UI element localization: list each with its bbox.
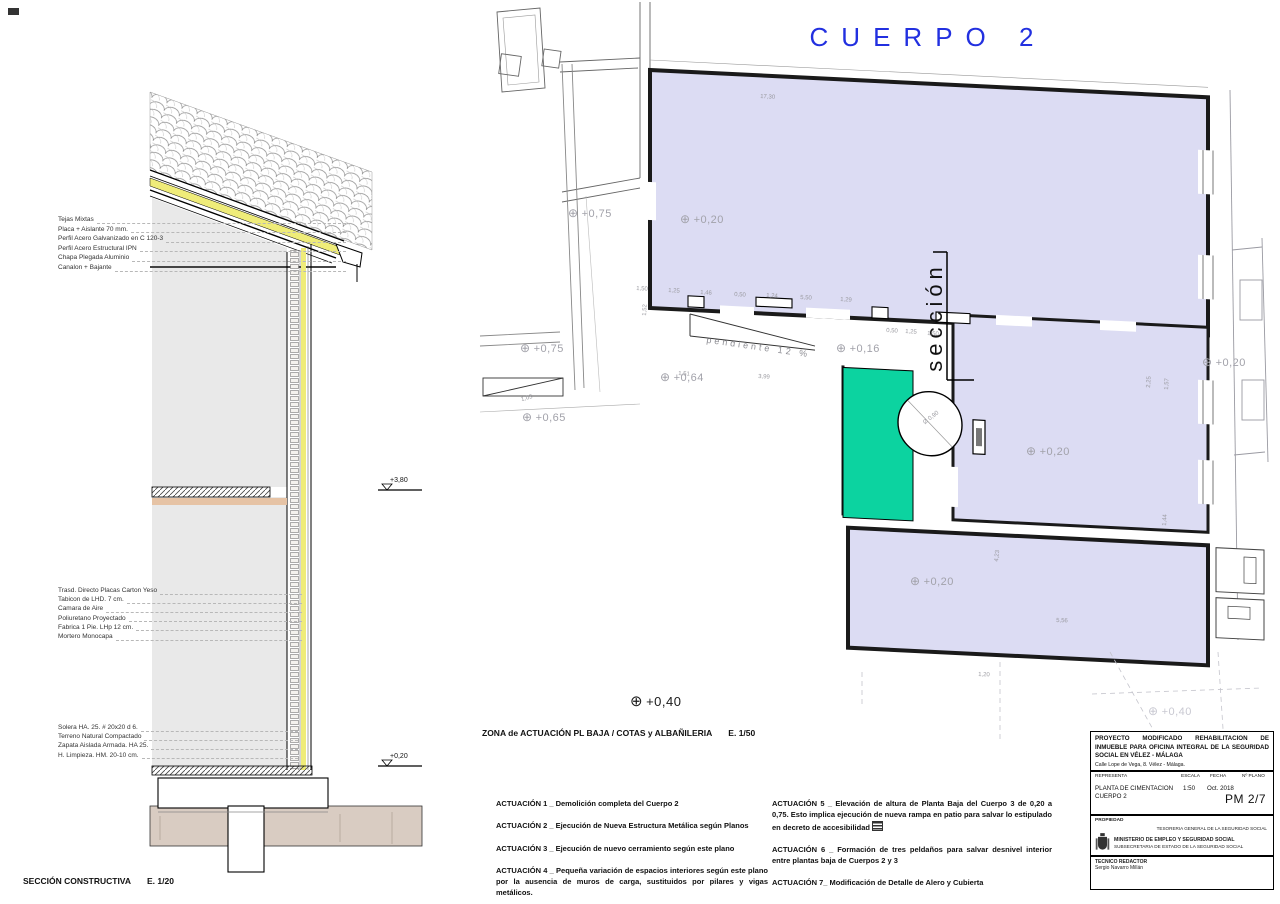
dimension-text-9: 0,50 (886, 328, 898, 335)
plan-title: CUERPO 2 (788, 22, 1068, 53)
leader-line (131, 228, 346, 233)
leader-line (115, 267, 346, 272)
material-label: Zapata Aislada Armada. HA 25. (58, 743, 151, 750)
spot-elevation-7: ⊕+0,20 (1026, 444, 1070, 458)
leader-line (127, 599, 302, 604)
dimension-text-7: 5,50 (800, 295, 812, 302)
dimension-text-13: 3,99 (758, 374, 770, 381)
notes-column-left: ACTUACIÓN 1 _ Demolición completa del Cu… (496, 798, 768, 904)
scale-value: 1:50 (1183, 785, 1195, 792)
representa-value: PLANTA DE CIMENTACION CUERPO 2 (1095, 785, 1173, 802)
leader-line (97, 219, 346, 224)
material-label: Chapa Plegada Aluminio (58, 255, 132, 262)
leader-line (142, 754, 298, 759)
target-icon: ⊕ (568, 206, 579, 220)
spot-elevation-9: ⊕+0,20 (910, 574, 954, 588)
roof-label-4: Perfil Acero Estructural IPN (58, 246, 346, 253)
notes-column-right: ACTUACIÓN 5 _ Elevación de altura de Pla… (772, 798, 1052, 900)
ministerio-text: MINISTERIO DE EMPLEO Y SEGURIDAD SOCIAL (1114, 837, 1243, 843)
target-icon: ⊕ (1026, 444, 1037, 458)
project-address: Calle Lope de Vega, 8. Vélez - Málaga. (1095, 762, 1269, 768)
spot-elevation-main: ⊕+0,40 (630, 692, 681, 710)
material-label: Trasd. Directo Placas Carton Yeso (58, 588, 160, 595)
dimension-text-17: 1,57 (1164, 378, 1171, 390)
dimension-text-8: 1,29 (840, 297, 852, 304)
foundation-label-4: H. Limpieza. HM. 20-10 cm. (58, 753, 298, 760)
material-label: Canalon + Bajante (58, 265, 115, 272)
roof-label-6: Canalon + Bajante (58, 265, 346, 272)
titleblock-values: PLANTA DE CIMENTACION CUERPO 2 1:50 Oct.… (1091, 783, 1273, 813)
dimension-text-18: 1,44 (1162, 514, 1169, 526)
dimension-text-1: 17,30 (760, 94, 775, 101)
subsecretaria-text: SUBSECRETARIA DE ESTADO DE LA SEGURIDAD … (1114, 844, 1243, 849)
dimension-text-20: 5,56 (1056, 618, 1068, 624)
footing (158, 778, 328, 808)
dimension-text-14: 1,52 (642, 304, 649, 316)
material-label: Solera HA. 25. # 20x20 d 6. (58, 725, 141, 732)
dimension-text-11: 1,50 (927, 331, 939, 338)
actuacion-note: ACTUACIÓN 2 _ Ejecución de Nueva Estruct… (496, 820, 768, 831)
dimension-text-3: 1,25 (668, 288, 680, 295)
target-icon: ⊕ (910, 574, 921, 588)
project-title: PROYECTO MODIFICADO REHABILITACION DE IN… (1095, 735, 1269, 761)
spot-elevation-1: ⊕+0,75 (568, 206, 612, 220)
target-icon: ⊕ (836, 341, 847, 355)
wall-label-6: Mortero Monocapa (58, 634, 302, 641)
leader-line (141, 727, 298, 732)
drawing-sheet: CUERPO 2 sección pendiente 12 % ⊕+0,40 +… (0, 0, 1280, 904)
target-icon: ⊕ (522, 410, 533, 424)
level-marks (378, 484, 422, 766)
solera (152, 766, 312, 775)
material-label: Terreno Natural Compactado (58, 734, 144, 741)
actuacion-note: ACTUACIÓN 5 _ Elevación de altura de Pla… (772, 798, 1052, 833)
dimension-text-16: 2,25 (1146, 376, 1153, 388)
material-label: Camara de Aire (58, 606, 106, 613)
roof-label-1: Tejas Mixtas (58, 217, 346, 224)
cuerpo2-building (644, 60, 1264, 668)
section-caption: SECCIÓN CONSTRUCTIVAE. 1/20 (23, 876, 174, 886)
material-label: Fabrica 1 Pie. LHp 12 cm. (58, 625, 136, 632)
accessibility-stamp-icon (872, 821, 883, 831)
title-block: PROYECTO MODIFICADO REHABILITACION DE IN… (1090, 731, 1274, 890)
wall-label-3: Camara de Aire (58, 606, 302, 613)
leader-line (129, 617, 302, 622)
dimension-text-21: 1,20 (978, 672, 990, 678)
material-label: Poliuretano Proyectado (58, 616, 129, 623)
right-floor-area (953, 315, 1208, 532)
dimension-text-2: 1,50 (636, 286, 648, 293)
dimension-text-10: 1,25 (905, 329, 917, 336)
wall-label-5: Fabrica 1 Pie. LHp 12 cm. (58, 625, 302, 632)
sheet-corner-mark (8, 8, 19, 15)
material-label: Perfil Acero Galvanizado en C 120-3 (58, 236, 166, 243)
section-wall (287, 244, 311, 770)
titleblock-headers: REPRESENTA ESCALA FECHA Nº PLANO (1091, 774, 1273, 783)
dimension-text-5: 0,50 (734, 292, 746, 299)
date-value: Oct. 2018 (1207, 785, 1234, 792)
roof-label-5: Chapa Plegada Aluminio (58, 255, 346, 262)
target-icon: ⊕ (1148, 704, 1159, 718)
leader-line (151, 745, 298, 750)
material-label: Tejas Mixtas (58, 217, 97, 224)
spot-elevation-3: ⊕+0,75 (520, 341, 564, 355)
dimension-text-19: 4,23 (994, 550, 1001, 562)
level-lower: +0,20 (390, 753, 408, 760)
dimension-text-12: 1,51 (678, 371, 690, 378)
actuacion-note: ACTUACIÓN 7_ Modificación de Detalle de … (772, 877, 1052, 888)
tecnico-name: Sergio Navarro Millán (1095, 865, 1269, 871)
actuacion-note: ACTUACIÓN 4 _ Pequeña variación de espac… (496, 865, 768, 899)
level-upper: +3,80 (390, 477, 408, 484)
propiedad-label: PROPIEDAD (1095, 818, 1269, 823)
dimension-text-6: 1,24 (766, 293, 778, 300)
leader-line (116, 636, 302, 641)
foundation-label-3: Zapata Aislada Armada. HA 25. (58, 743, 298, 750)
target-icon: ⊕ (680, 212, 691, 226)
lower-floor-area (848, 528, 1208, 666)
actuacion-note: ACTUACIÓN 6 _ Formación de tres peldaños… (772, 844, 1052, 867)
leader-line (166, 238, 346, 243)
wall-label-1: Trasd. Directo Placas Carton Yeso (58, 588, 302, 595)
target-icon: ⊕ (660, 370, 671, 384)
leader-line (136, 626, 302, 631)
spot-elevation-6: ⊕+0,65 (522, 410, 566, 424)
wall-label-4: Poliuretano Proyectado (58, 616, 302, 623)
foundation-label-2: Terreno Natural Compactado (58, 734, 298, 741)
actuation-green-zone (843, 367, 913, 520)
material-label: Tabicon de LHD. 7 cm. (58, 597, 127, 604)
coat-of-arms-icon (1095, 832, 1110, 853)
ministry-row: MINISTERIO DE EMPLEO Y SEGURIDAD SOCIAL … (1095, 832, 1269, 853)
zone-caption: ZONA de ACTUACIÓN PL BAJA / COTAS y ALBA… (482, 728, 755, 738)
material-label: H. Limpieza. HM. 20-10 cm. (58, 753, 142, 760)
dimension-text-4: 1,46 (700, 290, 712, 297)
roof-label-2: Placa + Aislante 70 mm. (58, 227, 346, 234)
leader-line (140, 247, 346, 252)
roof-label-3: Perfil Acero Galvanizado en C 120-3 (58, 236, 346, 243)
material-label: Mortero Monocapa (58, 634, 116, 641)
tesoreria-text: TESORERIA GENERAL DE LA SEGURIDAD SOCIAL (1097, 826, 1267, 831)
sheet-number: PM 2/7 (1225, 792, 1266, 806)
seccion-label: sección (922, 250, 948, 384)
foundation-label-1: Solera HA. 25. # 20x20 d 6. (58, 725, 298, 732)
target-icon: ⊕ (520, 341, 531, 355)
spot-elevation-10: ⊕+0,40 (1148, 704, 1192, 718)
target-icon: ⊕ (1202, 355, 1213, 369)
actuacion-note: ACTUACIÓN 1 _ Demolición completa del Cu… (496, 798, 768, 809)
leader-line (144, 736, 298, 741)
leader-line (132, 257, 346, 262)
leader-line (160, 590, 302, 595)
pier (228, 806, 264, 872)
wall-label-2: Tabicon de LHD. 7 cm. (58, 597, 302, 604)
target-icon: ⊕ (630, 693, 643, 710)
plan-and-section-linework (0, 0, 1280, 904)
leader-line (106, 608, 302, 613)
spot-elevation-8: ⊕+0,20 (1202, 355, 1246, 369)
actuacion-note: ACTUACIÓN 3 _ Ejecución de nuevo cerrami… (496, 843, 768, 854)
spot-elevation-2: ⊕+0,20 (680, 212, 724, 226)
material-label: Perfil Acero Estructural IPN (58, 246, 140, 253)
small-rooms (1216, 548, 1264, 640)
material-label: Placa + Aislante 70 mm. (58, 227, 131, 234)
spot-elevation-4: ⊕+0,16 (836, 341, 880, 355)
adjacent-building-lines (480, 2, 650, 412)
floor-slab (152, 487, 270, 497)
